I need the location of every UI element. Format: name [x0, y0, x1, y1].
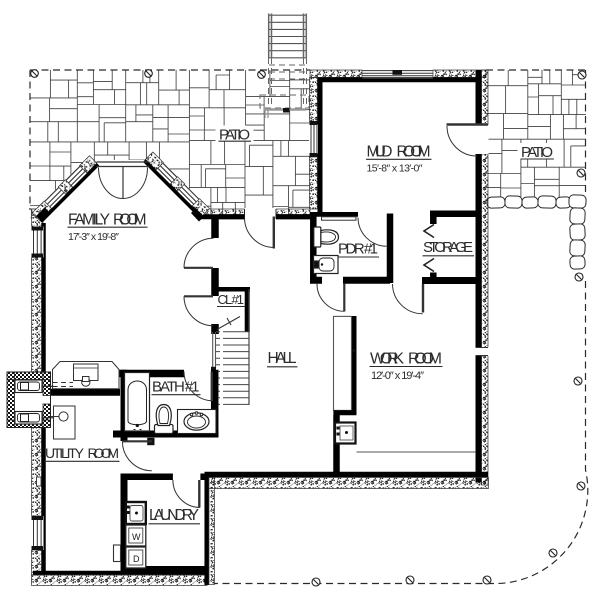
svg-text:FAMILY: FAMILY — [68, 212, 110, 229]
svg-text:UTILITY: UTILITY — [45, 445, 85, 461]
svg-text:17′-3″ x 19′-8″: 17′-3″ x 19′-8″ — [68, 231, 119, 243]
svg-text:W: W — [132, 532, 141, 542]
svg-text:BATH #1: BATH #1 — [152, 379, 200, 396]
svg-text:LAUNDRY: LAUNDRY — [149, 507, 199, 524]
svg-text:MUD: MUD — [367, 144, 393, 161]
svg-text:ROOM: ROOM — [408, 351, 442, 368]
svg-text:ROOM: ROOM — [88, 445, 120, 461]
svg-text:CL #1: CL #1 — [218, 292, 245, 307]
svg-text:PDR #1: PDR #1 — [338, 241, 378, 258]
svg-text:ROOM: ROOM — [113, 212, 147, 229]
svg-text:15′-8″ x 13′-0″: 15′-8″ x 13′-0″ — [367, 163, 423, 175]
svg-text:STORAGE: STORAGE — [423, 239, 473, 256]
svg-text:12′-0″ x 19′-4″: 12′-0″ x 19′-4″ — [371, 370, 424, 382]
svg-text:D: D — [133, 554, 140, 564]
svg-text:HALL: HALL — [268, 350, 297, 367]
svg-text:WORK: WORK — [370, 351, 404, 368]
svg-text:ROOM: ROOM — [397, 144, 431, 161]
